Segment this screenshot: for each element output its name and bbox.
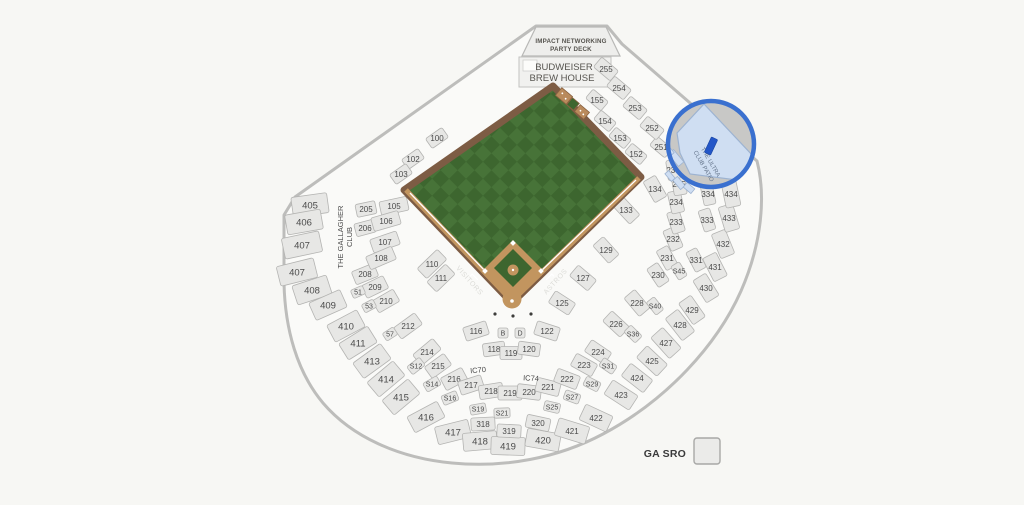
section-label: 125 (555, 299, 569, 308)
section-label: D (517, 330, 522, 337)
section-label: 416 (418, 412, 434, 423)
section-label: 120 (522, 345, 536, 354)
svg-text:THE GALLAGHER: THE GALLAGHER (336, 205, 345, 269)
section-label: 218 (484, 387, 498, 396)
home-plate-circle (503, 290, 522, 309)
section-label: 219 (503, 389, 517, 398)
section-label: 320 (531, 419, 545, 428)
section-label: 406 (296, 217, 312, 228)
section-label: 110 (426, 260, 439, 269)
section-label: 153 (613, 134, 627, 143)
section-label: 154 (598, 117, 612, 126)
section-label: 318 (476, 420, 490, 429)
section-label: 223 (577, 361, 591, 370)
section-label: 434 (724, 190, 738, 199)
section-label: 428 (673, 321, 687, 330)
section-label: 252 (645, 124, 659, 133)
section-label: 414 (378, 374, 394, 385)
section-label: 119 (505, 349, 518, 358)
section-label: 254 (612, 84, 626, 93)
camera-well (511, 314, 515, 318)
section-label: 102 (406, 155, 420, 164)
party-deck-label-line1: IMPACT NETWORKING (535, 38, 606, 45)
section-419[interactable]: 419 (491, 436, 526, 455)
section-label: 407 (294, 240, 310, 251)
section-label: 222 (560, 375, 574, 384)
section-label: 105 (387, 202, 401, 211)
section-label: 129 (599, 246, 613, 255)
svg-text:CLUB: CLUB (345, 227, 354, 247)
section-label: 413 (364, 356, 380, 367)
section-label: 152 (629, 150, 643, 159)
section-label: S36 (627, 331, 640, 338)
section-label: 425 (645, 357, 659, 366)
section-label: 409 (320, 300, 336, 311)
brew-house-label-line2: BREW HOUSE (530, 73, 595, 84)
section-label: 122 (540, 327, 554, 336)
section-label: 100 (430, 134, 444, 143)
section-label: S25 (546, 404, 559, 411)
section-label: 220 (522, 388, 536, 397)
pitcher-rubber (512, 269, 514, 271)
section-label-IC74[interactable]: IC74 (523, 373, 539, 383)
stadium-seating-map: IMPACT NETWORKING PARTY DECK BUDWEISER B… (0, 0, 1024, 500)
section-label: 232 (666, 235, 680, 244)
section-D[interactable]: D (515, 328, 525, 338)
section-label: B (501, 330, 506, 337)
section-label: 417 (445, 427, 461, 438)
section-label: S19 (472, 406, 485, 413)
section-label: 418 (472, 436, 488, 447)
section-label: 234 (669, 198, 683, 207)
section-label: 334 (701, 190, 715, 199)
section-label: 253 (628, 104, 642, 113)
section-label: 430 (699, 284, 713, 293)
section-label: 333 (700, 216, 714, 225)
section-120[interactable]: 120 (517, 341, 541, 357)
section-label: 410 (338, 321, 354, 332)
section-label: 228 (630, 299, 644, 308)
section-label: 226 (609, 320, 623, 329)
section-label: 429 (685, 306, 699, 315)
section-label: S14 (426, 381, 439, 388)
section-label: 411 (350, 338, 365, 349)
section-label: 432 (716, 240, 730, 249)
section-label: S12 (410, 363, 423, 370)
section-label: S27 (566, 394, 579, 401)
section-label: S45 (673, 268, 686, 275)
section-label: 215 (431, 362, 445, 371)
section-318[interactable]: 318 (471, 417, 496, 431)
section-label: 116 (470, 327, 483, 336)
section-label: S31 (602, 363, 615, 370)
section-label: 118 (488, 345, 501, 354)
section-label: 230 (651, 271, 665, 280)
brew-house-label-line1: BUDWEISER (535, 62, 593, 73)
section-label: 221 (541, 383, 555, 392)
section-label: 427 (659, 339, 673, 348)
section-label: S40 (649, 303, 662, 310)
party-deck-label-line2: PARTY DECK (550, 46, 592, 53)
section-label: S16 (444, 395, 457, 402)
section-label: 408 (304, 285, 320, 296)
section-label: 431 (708, 263, 722, 272)
section-label: 433 (722, 214, 736, 223)
section-S21[interactable]: S21 (494, 408, 510, 419)
section-label: 319 (502, 427, 516, 436)
camera-well (493, 312, 497, 316)
section-label: 208 (358, 270, 372, 279)
section-label: 233 (669, 218, 683, 227)
section-label: 155 (590, 96, 604, 105)
section-label: 205 (359, 205, 373, 214)
section-label: 57 (386, 331, 394, 338)
home-plate (510, 299, 514, 303)
section-label: 331 (689, 256, 703, 265)
section-label: 231 (660, 254, 674, 263)
section-label: 103 (394, 170, 408, 179)
section-label: 108 (374, 254, 388, 263)
section-label: 224 (591, 348, 605, 357)
section-label: 407 (289, 267, 305, 278)
ga-sro-swatch[interactable] (694, 438, 720, 464)
section-label: 127 (576, 274, 590, 283)
section-B[interactable]: B (498, 328, 508, 338)
section-label: 212 (401, 322, 415, 331)
section-label: 424 (630, 374, 644, 383)
section-label-IC70[interactable]: IC70 (470, 365, 487, 375)
section-label: 106 (379, 217, 393, 226)
section-label: 415 (393, 392, 409, 403)
section-label: 210 (379, 297, 393, 306)
section-label: 421 (565, 427, 579, 436)
section-label: 51 (354, 289, 362, 296)
section-label: 133 (619, 206, 633, 215)
section-label: 422 (589, 414, 603, 423)
section-label: 423 (614, 391, 628, 400)
section-label: 111 (435, 274, 448, 283)
section-label: S29 (586, 381, 599, 388)
section-label: 206 (358, 224, 372, 233)
ga-sro-label: GA SRO (644, 448, 686, 460)
section-label: 419 (500, 441, 516, 452)
section-label: 214 (420, 348, 434, 357)
section-label: S21 (496, 410, 509, 417)
section-319[interactable]: 319 (497, 424, 522, 438)
section-label: 209 (368, 283, 382, 292)
camera-well (529, 312, 533, 316)
section-label: 134 (648, 185, 662, 194)
section-label: 107 (378, 238, 392, 247)
section-label: 420 (535, 435, 551, 446)
section-label: 255 (599, 65, 613, 74)
section-label: 217 (464, 381, 478, 390)
section-label: 53 (365, 303, 373, 310)
